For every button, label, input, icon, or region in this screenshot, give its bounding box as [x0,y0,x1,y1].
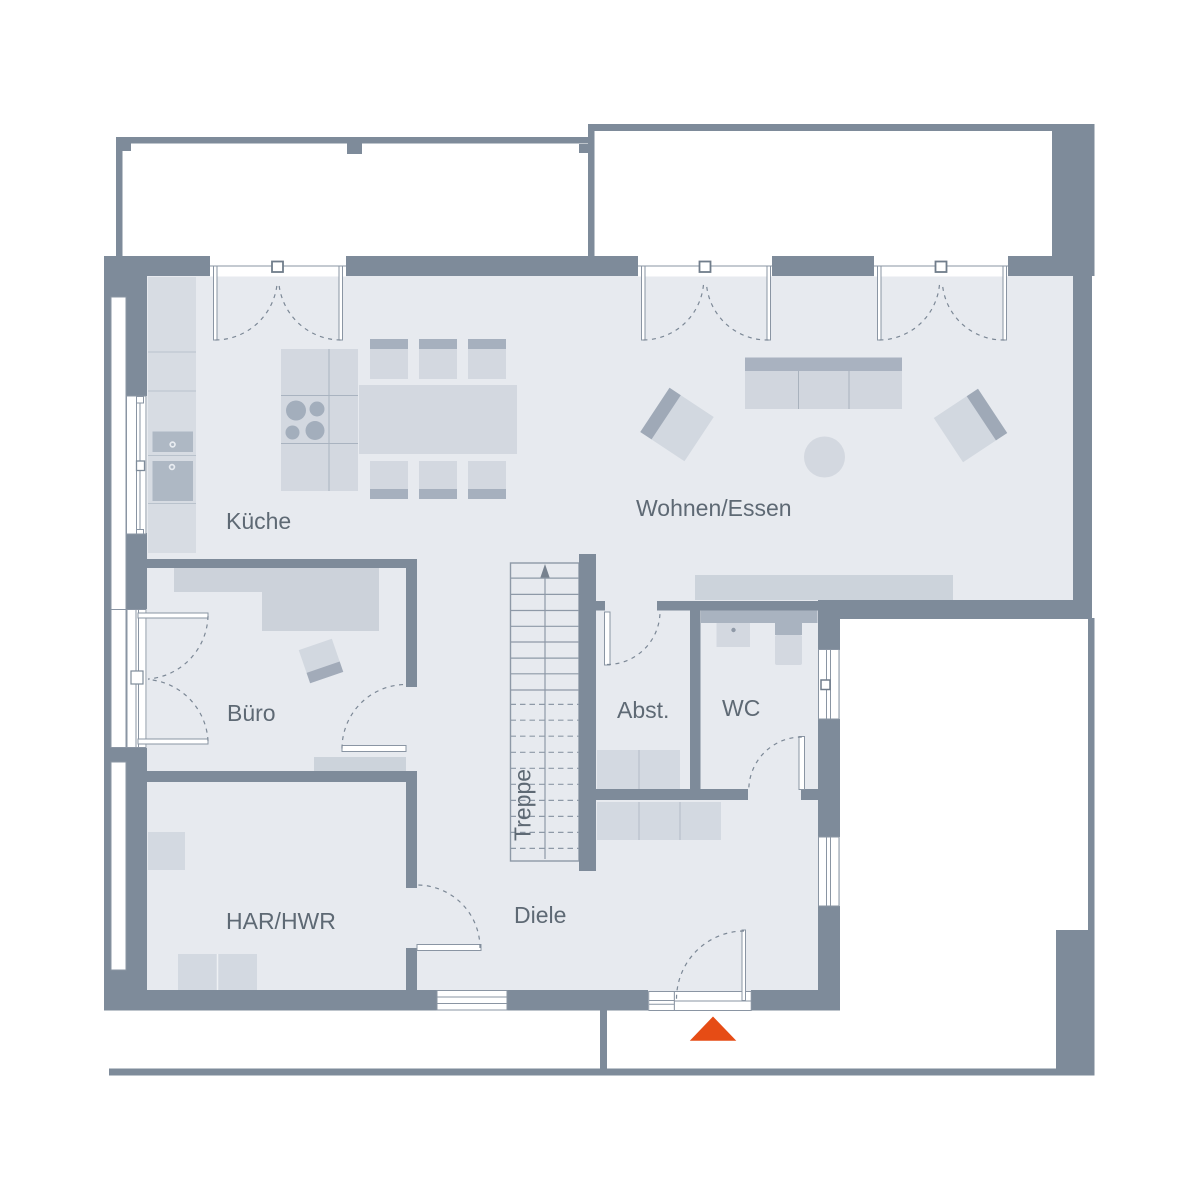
svg-text:Wohnen/Essen: Wohnen/Essen [636,495,792,521]
svg-text:Küche: Küche [226,508,291,534]
svg-text:HAR/HWR: HAR/HWR [226,908,336,934]
svg-text:Büro: Büro [227,700,276,726]
svg-text:WC: WC [722,695,760,721]
svg-text:Treppe: Treppe [510,769,536,841]
svg-text:Diele: Diele [514,902,566,928]
svg-text:Abst.: Abst. [617,697,669,723]
